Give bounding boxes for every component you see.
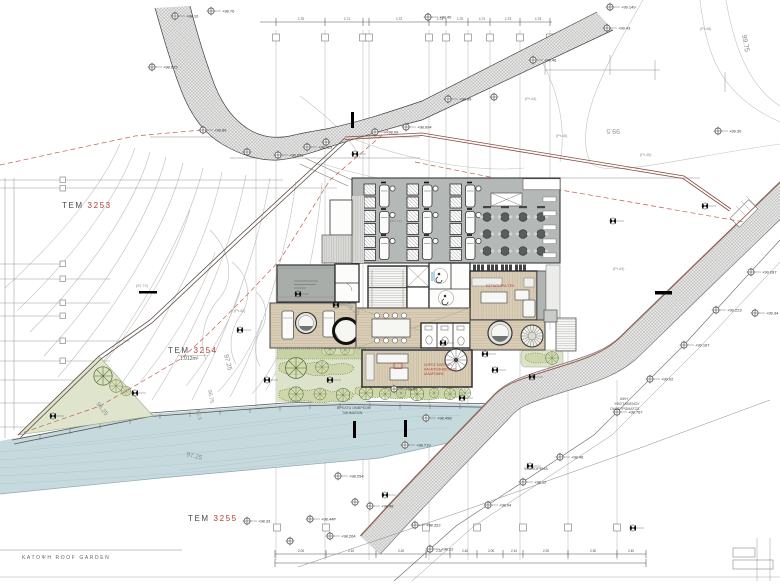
svg-text:+98.04: +98.04 xyxy=(499,503,512,508)
svg-text:1.73: 1.73 xyxy=(437,17,443,21)
svg-text:+98.719: +98.719 xyxy=(416,443,431,448)
svg-text:TEM 3255: TEM 3255 xyxy=(188,514,238,523)
svg-text:+98.46: +98.46 xyxy=(571,455,584,460)
svg-text:+98.458: +98.458 xyxy=(437,416,452,421)
svg-text:+98.44P: +98.44P xyxy=(321,517,336,522)
svg-text:ΕΣΤΙΑΤΟΡΙΑ ΤΕΛ: ΕΣΤΙΑΤΟΡΙΑ ΤΕΛ xyxy=(486,284,515,288)
svg-text:2.30: 2.30 xyxy=(436,549,442,553)
svg-text:+99.287: +99.287 xyxy=(762,270,777,275)
svg-text:ΤΜΗΜΑΤΩΝ: ΤΜΗΜΑΤΩΝ xyxy=(342,411,363,415)
svg-text:2.20: 2.20 xyxy=(543,549,549,553)
svg-text:2.10: 2.10 xyxy=(511,549,517,553)
svg-text:+98.09: +98.09 xyxy=(386,130,399,135)
svg-text:1.71: 1.71 xyxy=(344,17,350,21)
svg-text:(Pr.42): (Pr.42) xyxy=(234,309,246,313)
svg-text:+98.264: +98.264 xyxy=(341,534,356,539)
svg-text:+98.322: +98.322 xyxy=(426,523,441,528)
svg-text:+98.76: +98.76 xyxy=(222,9,235,14)
svg-text:+99.43: +99.43 xyxy=(618,26,631,31)
svg-text:1.72: 1.72 xyxy=(505,17,511,21)
svg-text:TEM 3254: TEM 3254 xyxy=(168,346,218,355)
svg-text:99.5: 99.5 xyxy=(606,127,620,134)
svg-text:(Pr.45): (Pr.45) xyxy=(640,153,652,157)
svg-text:ΚΑΙ ΑΠΟΘΗΚΕΥΣΗΣ: ΚΑΙ ΑΠΟΘΗΚΕΥΣΗΣ xyxy=(424,368,456,372)
svg-text:ΥΦΙΣΤΑΜΕΝΟΥ: ΥΦΙΣΤΑΜΕΝΟΥ xyxy=(614,402,640,406)
svg-text:(Pr.44): (Pr.44) xyxy=(525,97,537,101)
svg-text:+98.052: +98.052 xyxy=(289,153,304,158)
svg-text:(Pr.46): (Pr.46) xyxy=(700,27,712,31)
svg-text:2.40: 2.40 xyxy=(462,549,468,553)
svg-text:+99.46: +99.46 xyxy=(544,58,557,63)
svg-text:(97.72): (97.72) xyxy=(136,284,149,288)
svg-text:1.73: 1.73 xyxy=(535,17,541,21)
svg-text:1.70: 1.70 xyxy=(457,17,463,21)
svg-text:ΔΙΑΔΡΟΜΗΣ: ΔΙΑΔΡΟΜΗΣ xyxy=(424,372,444,376)
svg-text:+98.12: +98.12 xyxy=(534,480,547,485)
svg-text:1.72: 1.72 xyxy=(396,17,402,21)
svg-text:(96.xx): (96.xx) xyxy=(390,219,402,223)
svg-text:ΧΩΡΟΣ ΕΛΕΓΧΟΥ: ΧΩΡΟΣ ΕΛΕΓΧΟΥ xyxy=(424,363,453,367)
svg-text:+99.02: +99.02 xyxy=(661,377,674,382)
svg-text:+98.10: +98.10 xyxy=(186,14,199,19)
svg-text:ΚΑΤΟΨΗ ROOF GARDEN: ΚΑΤΟΨΗ ROOF GARDEN xyxy=(22,555,110,561)
svg-text:+98.48: +98.48 xyxy=(381,504,394,509)
svg-text:ΑΦΗ: ΑΦΗ xyxy=(620,397,628,401)
svg-text:+99.149: +99.149 xyxy=(621,5,636,10)
svg-text:ΒΡΕΑΤΩ ΟΜΒΡΕΩΝ: ΒΡΕΑΤΩ ΟΜΒΡΕΩΝ xyxy=(337,406,371,410)
svg-text:+99.09: +99.09 xyxy=(459,97,472,102)
svg-text:2.00: 2.00 xyxy=(488,549,494,553)
svg-text:+98.02: +98.02 xyxy=(441,547,454,552)
svg-text:1.70: 1.70 xyxy=(298,17,304,21)
svg-text:+98.254: +98.254 xyxy=(349,474,364,479)
svg-text:2.20: 2.20 xyxy=(398,549,404,553)
svg-text:2.00: 2.00 xyxy=(298,549,304,553)
svg-text:ΟΔΟΣΤΡΩΜΑΤΟΣ: ΟΔΟΣΤΡΩΜΑΤΟΣ xyxy=(610,407,640,411)
svg-text:+98.094: +98.094 xyxy=(417,125,432,130)
svg-text:+98.33: +98.33 xyxy=(258,519,271,524)
svg-text:1.71: 1.71 xyxy=(479,17,485,21)
svg-text:+99.167: +99.167 xyxy=(695,343,710,348)
svg-text:+98.89: +98.89 xyxy=(214,128,227,133)
svg-text:ΨΑΛΤΟΡΕΜΑ: ΨΑΛΤΟΡΕΜΑ xyxy=(524,467,548,471)
svg-text:+99.34: +99.34 xyxy=(766,311,779,316)
svg-text:+99.223: +99.223 xyxy=(727,308,742,313)
svg-text:+98.40: +98.40 xyxy=(405,387,418,392)
svg-text:2.30: 2.30 xyxy=(590,549,596,553)
svg-text:+98.675: +98.675 xyxy=(163,65,178,70)
svg-text:(Pr.45): (Pr.45) xyxy=(556,134,568,138)
svg-text:2.10: 2.10 xyxy=(348,549,354,553)
svg-text:TEM 3253: TEM 3253 xyxy=(62,201,112,210)
svg-text:+99.30: +99.30 xyxy=(729,129,742,134)
svg-text:(Pr.43): (Pr.43) xyxy=(613,267,625,271)
svg-text:1.012m²: 1.012m² xyxy=(180,356,199,362)
svg-text:2.40: 2.40 xyxy=(628,549,634,553)
